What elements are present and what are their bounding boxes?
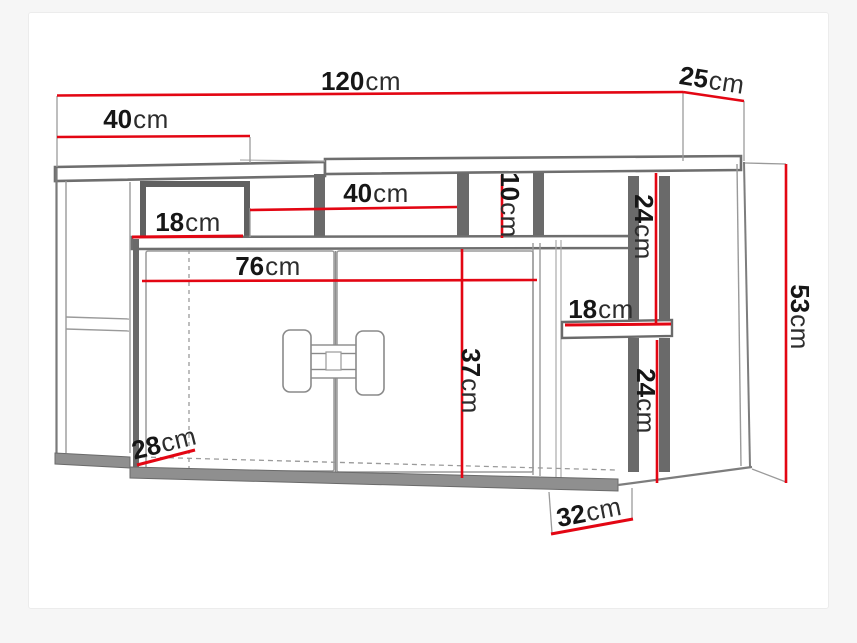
dim-line-bottom-right-depth (551, 519, 633, 534)
top-left-niche (143, 184, 247, 238)
dim-line-middle-niche (250, 207, 457, 210)
dim-line-right-shelf (565, 324, 671, 325)
dim-line-depth (683, 92, 744, 101)
dim-line-left-niche (132, 236, 243, 237)
dim-line-total-width (57, 92, 683, 96)
top-back-edge (240, 160, 325, 161)
cabinet-line-drawing (0, 0, 857, 643)
dim-line-top-left-width (57, 136, 250, 137)
top-partitions (314, 173, 544, 239)
right-side-panel (737, 162, 750, 467)
left-open-shelf (57, 168, 131, 457)
dim-line-doors-width (142, 280, 537, 281)
diagram-stage: 120cm 25cm 40cm 18cm 40cm 10cm 24cm 18cm… (0, 0, 857, 643)
